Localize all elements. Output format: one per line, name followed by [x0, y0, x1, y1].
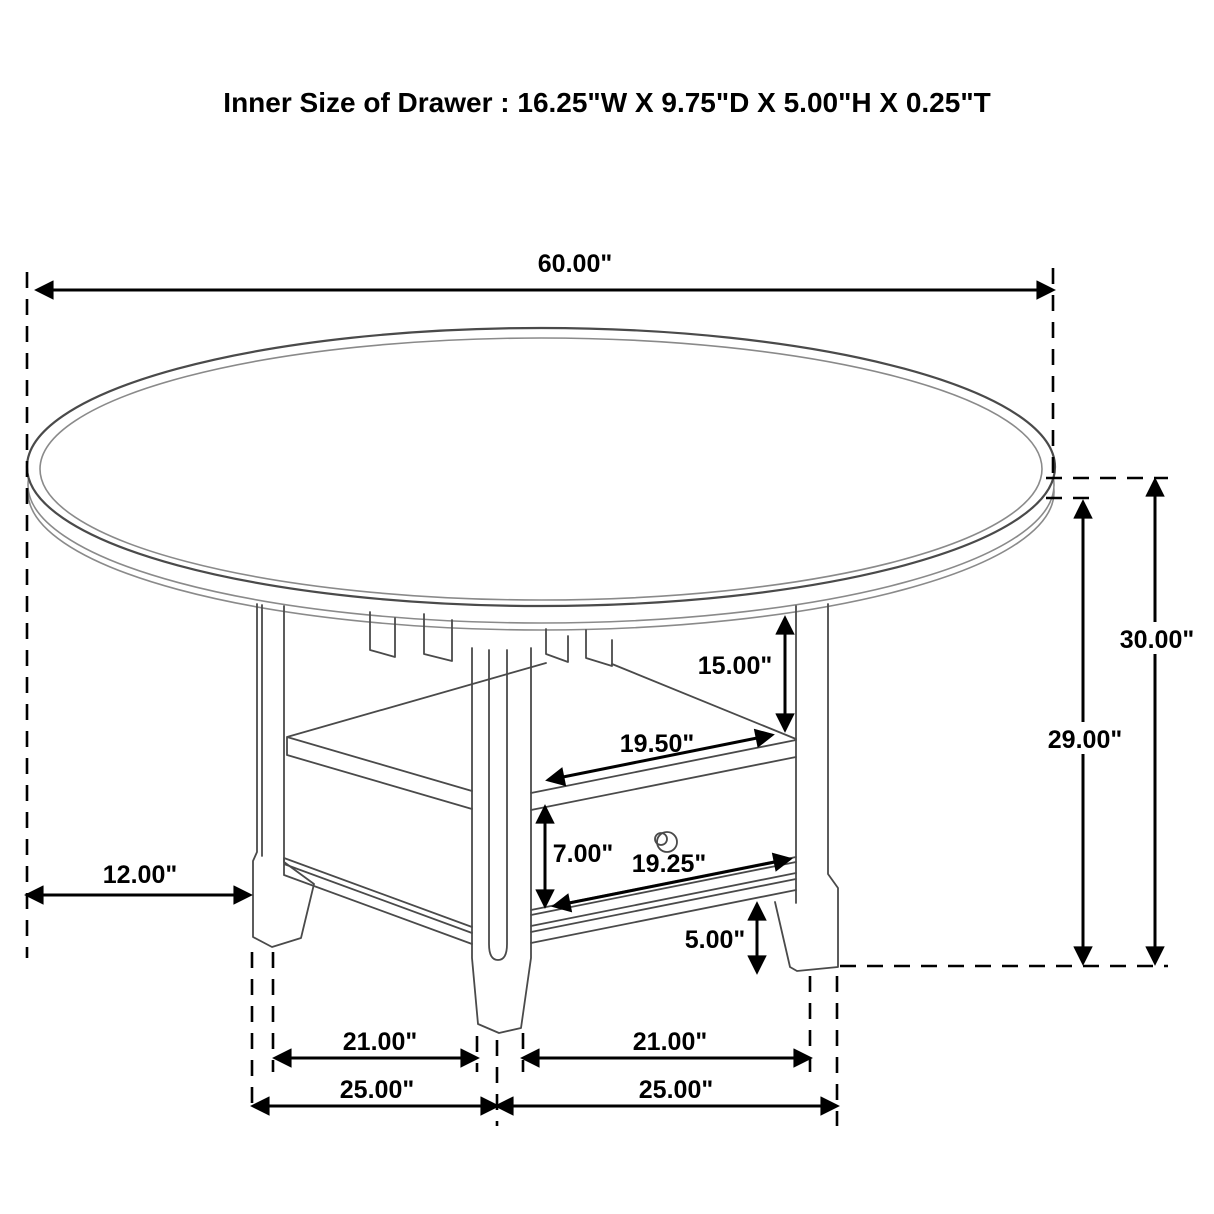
dim-label-drawer-front-height: 7.00"	[553, 840, 614, 868]
dim-label-rail-clearance: 5.00"	[685, 926, 746, 954]
left-leg	[253, 604, 314, 947]
dim-label-outer-span-right: 25.00"	[639, 1076, 713, 1104]
dim-label-drawer-bottom-width: 19.25"	[632, 850, 706, 878]
dim-label-shelf-opening: 15.00"	[698, 652, 772, 680]
dimension-diagram: 60.00" 30.00" 29.00" 15.00" 19.50" 7.00"…	[0, 0, 1214, 1214]
dim-label-inner-span-right: 21.00"	[633, 1028, 707, 1056]
dim-label-top-overhang: 12.00"	[103, 861, 177, 889]
round-table-drawing	[27, 328, 1055, 1033]
drawer-inner-size-title: Inner Size of Drawer : 16.25"W X 9.75"D …	[223, 87, 990, 118]
center-leg	[472, 648, 531, 1033]
dim-label-drawer-top-width: 19.50"	[620, 730, 694, 758]
dim-label-inner-span-left: 21.00"	[343, 1028, 417, 1056]
dim-label-outer-span-left: 25.00"	[340, 1076, 414, 1104]
dim-label-overall-height: 30.00"	[1120, 626, 1194, 654]
tabletop-outer-ellipse	[27, 328, 1055, 606]
left-bottom-rail	[284, 858, 472, 944]
diagram-canvas: 60.00" 30.00" 29.00" 15.00" 19.50" 7.00"…	[0, 0, 1214, 1214]
dim-label-underside-height: 29.00"	[1048, 726, 1122, 754]
dim-label-top-diameter: 60.00"	[538, 250, 612, 278]
